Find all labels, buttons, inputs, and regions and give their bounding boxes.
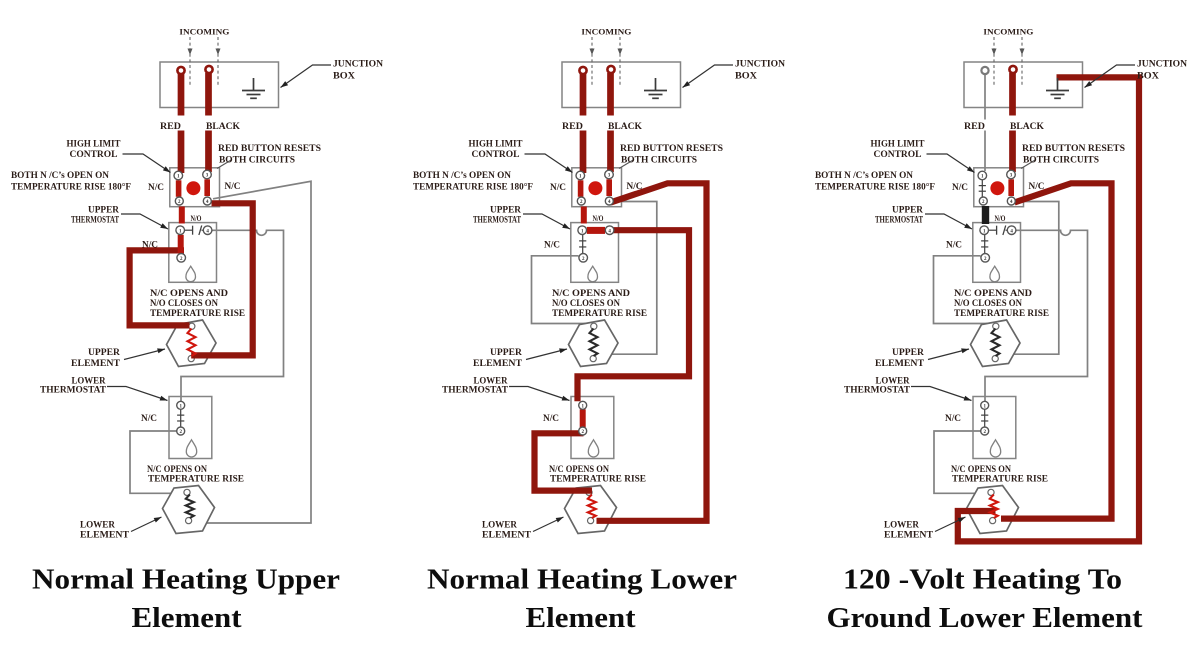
svg-text:TEMPERATURE RISE 180°F: TEMPERATURE RISE 180°F xyxy=(11,182,131,193)
svg-text:N/C: N/C xyxy=(627,182,643,192)
svg-text:N/C: N/C xyxy=(142,241,158,251)
svg-text:THERMOSTAT: THERMOSTAT xyxy=(442,385,509,396)
svg-text:BOTH N /C’s OPEN ON: BOTH N /C’s OPEN ON xyxy=(815,170,913,181)
svg-text:N/C: N/C xyxy=(141,414,157,424)
svg-text:BLACK: BLACK xyxy=(206,122,241,132)
svg-text:ELEMENT: ELEMENT xyxy=(884,530,934,541)
svg-text:BOTH CIRCUITS: BOTH CIRCUITS xyxy=(1023,155,1099,166)
svg-text:HIGH LIMIT: HIGH LIMIT xyxy=(67,139,122,150)
svg-text:BOX: BOX xyxy=(735,72,757,82)
svg-text:RED: RED xyxy=(160,122,181,132)
svg-text:TEMPERATURE RISE: TEMPERATURE RISE xyxy=(954,308,1049,319)
svg-text:Normal Heating Lower: Normal Heating Lower xyxy=(427,565,737,596)
svg-text:BOTH N /C’s OPEN ON: BOTH N /C’s OPEN ON xyxy=(11,170,109,181)
svg-text:N/C: N/C xyxy=(945,414,961,424)
svg-text:ELEMENT: ELEMENT xyxy=(80,530,130,541)
svg-text:N/C: N/C xyxy=(148,183,164,193)
svg-text:ELEMENT: ELEMENT xyxy=(473,358,523,369)
svg-text:N/C: N/C xyxy=(1029,182,1045,192)
svg-text:THERMOSTAT: THERMOSTAT xyxy=(875,215,923,226)
svg-text:N/C: N/C xyxy=(544,241,560,251)
svg-text:N/C: N/C xyxy=(946,241,962,251)
svg-text:BOX: BOX xyxy=(333,72,355,82)
svg-text:BLACK: BLACK xyxy=(608,122,643,132)
svg-text:120 -Volt Heating To: 120 -Volt Heating To xyxy=(843,565,1122,596)
svg-text:N/C: N/C xyxy=(550,183,566,193)
svg-text:UPPER: UPPER xyxy=(490,347,523,358)
svg-text:BLACK: BLACK xyxy=(1010,122,1045,132)
svg-text:INCOMING: INCOMING xyxy=(179,27,229,37)
svg-text:INCOMING: INCOMING xyxy=(983,27,1033,37)
svg-text:THERMOSTAT: THERMOSTAT xyxy=(844,385,911,396)
svg-text:TEMPERATURE RISE 180°F: TEMPERATURE RISE 180°F xyxy=(815,182,935,193)
svg-text:ELEMENT: ELEMENT xyxy=(71,358,121,369)
svg-text:N/C: N/C xyxy=(225,182,241,192)
svg-text:THERMOSTAT: THERMOSTAT xyxy=(40,385,107,396)
svg-text:Element: Element xyxy=(526,603,637,634)
svg-text:JUNCTION: JUNCTION xyxy=(735,60,785,70)
svg-text:N/C: N/C xyxy=(952,183,968,193)
svg-text:Element: Element xyxy=(132,603,243,634)
svg-text:JUNCTION: JUNCTION xyxy=(1137,60,1187,70)
svg-text:CONTROL: CONTROL xyxy=(70,149,118,160)
svg-text:CONTROL: CONTROL xyxy=(874,149,922,160)
svg-text:TEMPERATURE RISE: TEMPERATURE RISE xyxy=(148,474,244,485)
svg-text:THERMOSTAT: THERMOSTAT xyxy=(473,215,521,226)
svg-text:RED: RED xyxy=(964,122,985,132)
svg-text:HIGH LIMIT: HIGH LIMIT xyxy=(469,139,524,150)
svg-text:UPPER: UPPER xyxy=(892,347,925,358)
svg-text:Normal Heating Upper: Normal Heating Upper xyxy=(32,565,340,596)
svg-text:N/O: N/O xyxy=(191,213,202,223)
svg-text:HIGH LIMIT: HIGH LIMIT xyxy=(871,139,926,150)
svg-text:BOTH CIRCUITS: BOTH CIRCUITS xyxy=(219,155,295,166)
svg-text:BOTH N /C’s OPEN ON: BOTH N /C’s OPEN ON xyxy=(413,170,511,181)
svg-text:ELEMENT: ELEMENT xyxy=(482,530,532,541)
svg-text:RED BUTTON RESETS: RED BUTTON RESETS xyxy=(620,143,723,154)
svg-text:N/O: N/O xyxy=(995,213,1006,223)
svg-text:TEMPERATURE RISE: TEMPERATURE RISE xyxy=(550,474,646,485)
svg-text:N/O: N/O xyxy=(593,213,604,223)
svg-text:RED BUTTON RESETS: RED BUTTON RESETS xyxy=(1022,143,1125,154)
svg-text:UPPER: UPPER xyxy=(88,347,121,358)
svg-text:JUNCTION: JUNCTION xyxy=(333,60,383,70)
svg-text:TEMPERATURE RISE 180°F: TEMPERATURE RISE 180°F xyxy=(413,182,533,193)
svg-text:BOTH CIRCUITS: BOTH CIRCUITS xyxy=(621,155,697,166)
svg-text:CONTROL: CONTROL xyxy=(472,149,520,160)
svg-text:TEMPERATURE RISE: TEMPERATURE RISE xyxy=(150,308,245,319)
svg-text:N/C: N/C xyxy=(543,414,559,424)
svg-text:INCOMING: INCOMING xyxy=(581,27,631,37)
svg-text:TEMPERATURE RISE: TEMPERATURE RISE xyxy=(952,474,1048,485)
svg-text:Ground Lower Element: Ground Lower Element xyxy=(827,603,1144,634)
svg-text:RED BUTTON RESETS: RED BUTTON RESETS xyxy=(218,143,321,154)
svg-text:ELEMENT: ELEMENT xyxy=(875,358,925,369)
svg-text:TEMPERATURE RISE: TEMPERATURE RISE xyxy=(552,308,647,319)
svg-text:THERMOSTAT: THERMOSTAT xyxy=(71,215,119,226)
svg-text:BOX: BOX xyxy=(1137,72,1159,82)
svg-text:RED: RED xyxy=(562,122,583,132)
